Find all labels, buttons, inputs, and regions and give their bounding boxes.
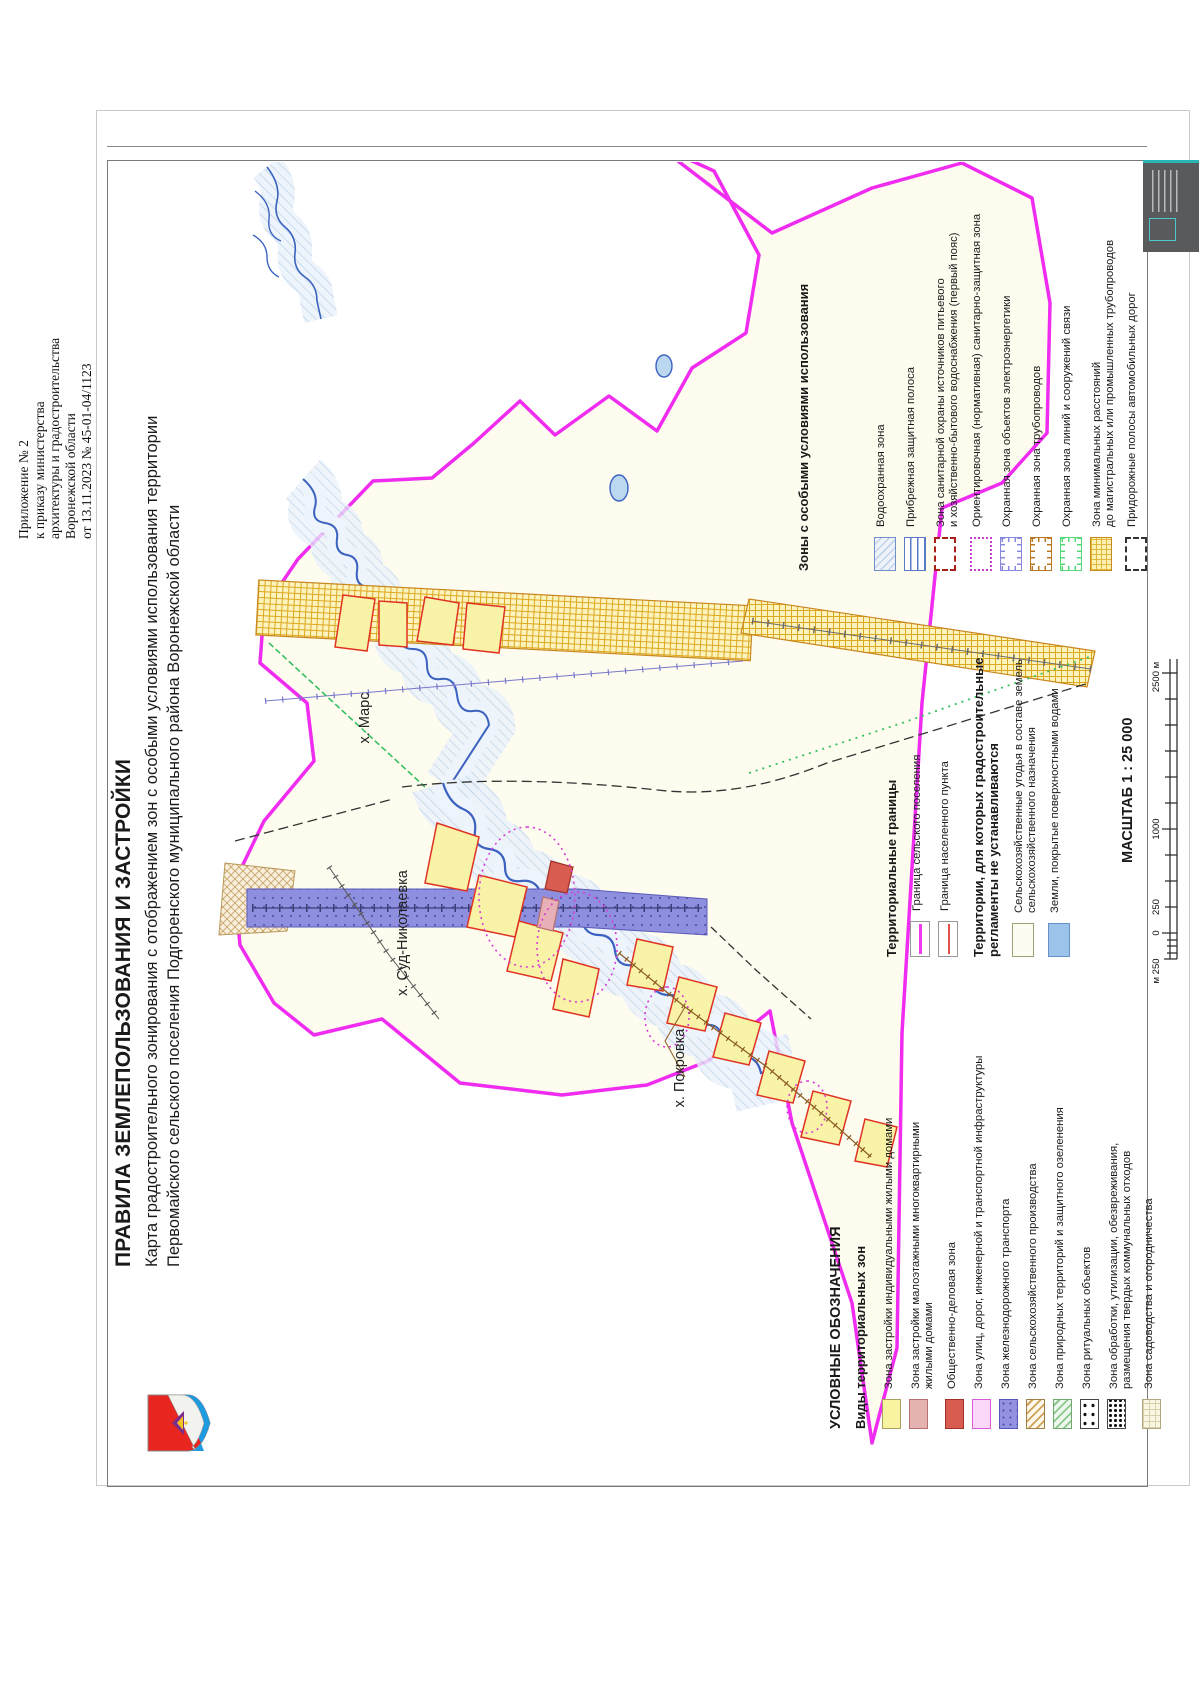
legend-heading: Территориальные границы: [884, 647, 899, 957]
legend-item: Граница сельского поселения: [909, 647, 930, 957]
legend-boundary-list: Граница сельского поселения Граница насе…: [909, 647, 958, 957]
legend-boundaries: Территориальные границы Граница сельског…: [884, 647, 1077, 957]
legend-item-label: Граница сельского поселения: [909, 755, 924, 911]
place-label-pokrovka: х. Покровка: [672, 1028, 688, 1108]
legend-swatch-icon: [882, 1399, 901, 1429]
legend-line-swatch-icon: [910, 921, 930, 957]
legend-swatch-icon: [1053, 1399, 1072, 1429]
legend-item-label: Зона улиц, дорог, инженерной и транспорт…: [971, 1056, 986, 1389]
legend-swatch-icon: [1080, 1399, 1099, 1429]
legend-item-label: Зона железнодорожного транспорта: [998, 1199, 1013, 1389]
scale-title: МАСШТАБ 1 : 25 000: [1120, 718, 1136, 863]
legend-swatch-icon: [1060, 537, 1082, 571]
streams-north: [253, 167, 321, 319]
legend-heading: УСЛОВНЫЕ ОБОЗНАЧЕНИЯ: [828, 949, 844, 1429]
document-page: Приложение № 2 к приказу министерства ар…: [0, 0, 1200, 1699]
legend-item: Зона природных территорий и защитного оз…: [1052, 949, 1072, 1429]
legend-swatch-icon: [1030, 537, 1052, 571]
header-note-line: к приказу министерства: [32, 99, 48, 539]
legend-swatch-icon: [1048, 923, 1070, 957]
legend-line-swatch-icon: [938, 921, 958, 957]
legend-swatch-icon: [1107, 1399, 1126, 1429]
header-note: Приложение № 2 к приказу министерства ар…: [16, 99, 94, 539]
legend-swatch-icon: [1142, 1399, 1161, 1429]
legend-swatch-icon: [1090, 537, 1112, 571]
legend-item-label: Зона природных территорий и защитного оз…: [1052, 1107, 1067, 1389]
legend-item-label: Зона обработки, утилизации, обезвреживан…: [1106, 1143, 1135, 1389]
stamp-teal-edge: [1143, 160, 1199, 163]
legend-swatch-icon: [999, 1399, 1018, 1429]
legend-subheading: Виды территориальных зон: [853, 949, 868, 1429]
legend-item: Зона обработки, утилизации, обезвреживан…: [1106, 949, 1135, 1429]
legend-noreg-list: Сельскохозяйственные угодья в составе зе…: [1011, 647, 1070, 957]
legend-zouit: Зоны с особыми условиями использования В…: [796, 151, 1154, 571]
legend-heading-noreg: Территории, для которых градостроительны…: [971, 647, 1001, 957]
legend-swatch-icon: [1026, 1399, 1045, 1429]
header-note-line: архитектуры и градостроительства: [47, 99, 63, 539]
legend-swatch-icon: [904, 537, 926, 571]
legend-item-label: Ориентировочная (нормативная) санитарно-…: [969, 214, 984, 527]
legend-swatch-icon: [874, 537, 896, 571]
legend-item-label: Земли, покрытые поверхностными водами: [1047, 688, 1062, 913]
legend-item: Прибрежная защитная полоса: [903, 151, 926, 571]
scale-tick-label: 1000: [1151, 818, 1162, 839]
legend-item: Общественно-деловая зона: [944, 949, 964, 1429]
stamp-qr-icon: [1149, 218, 1176, 241]
legend-item-label: Водоохранная зона: [873, 424, 888, 527]
frame-margin-line: [107, 146, 1147, 147]
legend-swatch-icon: [1125, 537, 1147, 571]
legend-item: Зона застройки индивидуальными жилыми до…: [881, 949, 901, 1429]
scale-tick-label: 0: [1151, 930, 1162, 935]
scale-tick-label: 2500 м: [1151, 662, 1162, 692]
legend-item: Земли, покрытые поверхностными водами: [1047, 647, 1070, 957]
legend-swatch-icon: [909, 1399, 928, 1429]
legend-swatch-icon: [1012, 923, 1034, 957]
legend-item-label: Сельскохозяйственные угодья в составе зе…: [1011, 659, 1040, 913]
header-note-line: от 13.11.2023 № 45-01-04/1123: [79, 99, 95, 539]
legend-item: Ориентировочная (нормативная) санитарно-…: [969, 151, 992, 571]
header-note-line: Приложение № 2: [16, 99, 32, 539]
legend-item-label: Зона садоводства и огородничества: [1141, 1198, 1156, 1389]
legend-item-label: Охранная зона трубопроводов: [1029, 366, 1044, 527]
legend-item-label: Зона сельскохозяйственного производства: [1025, 1163, 1040, 1389]
place-label-mars: х. Марс: [357, 693, 373, 744]
legend-item: Зона железнодорожного транспорта: [998, 949, 1018, 1429]
legend-item-label: Зона минимальных расстояний до магистрал…: [1089, 240, 1118, 527]
legend-item: Охранная зона трубопроводов: [1029, 151, 1052, 571]
legend-swatch-icon: [970, 537, 992, 571]
legend-swatch-icon: [945, 1399, 964, 1429]
legend-item-label: Зона застройки индивидуальными жилыми до…: [881, 1118, 896, 1389]
scale-tick-label: м 250: [1151, 958, 1162, 983]
legend-heading: Зоны с особыми условиями использования: [796, 151, 811, 571]
legend-item: Зона садоводства и огородничества: [1141, 949, 1161, 1429]
legend-item: Охранная зона объектов электроэнергетики: [999, 151, 1022, 571]
legend-item-label: Зона ритуальных объектов: [1079, 1247, 1094, 1389]
legend-item: Граница населенного пункта: [937, 647, 958, 957]
legend-item: Охранная зона линий и сооружений связи: [1059, 151, 1082, 571]
legend-item-label: Зона застройки малоэтажными многоквартир…: [908, 1122, 937, 1389]
landscape-sheet: Приложение № 2 к приказу министерства ар…: [0, 0, 1200, 1699]
legend-item: Зона улиц, дорог, инженерной и транспорт…: [971, 949, 991, 1429]
legend-item-label: Прибрежная защитная полоса: [903, 367, 918, 527]
legend-item: Зона застройки малоэтажными многоквартир…: [908, 949, 937, 1429]
legend-swatch-icon: [934, 537, 956, 571]
legend-zone-types: УСЛОВНЫЕ ОБОЗНАЧЕНИЯ Виды территориальны…: [828, 949, 1168, 1429]
legend-zone-list: Зона застройки индивидуальными жилыми до…: [881, 949, 1161, 1429]
legend-item: Водоохранная зона: [873, 151, 896, 571]
legend-item: Зона санитарной охраны источников питьев…: [933, 151, 962, 571]
header-note-line: Воронежской области: [63, 99, 79, 539]
stamp-badge: [1143, 160, 1199, 252]
legend-zouit-list: Водоохранная зона Прибрежная защитная по…: [873, 151, 1147, 571]
legend-item: Сельскохозяйственные угодья в составе зе…: [1011, 647, 1040, 957]
legend-swatch-icon: [972, 1399, 991, 1429]
legend-item-label: Придорожные полосы автомобильных дорог: [1124, 292, 1139, 527]
legend-item-label: Общественно-деловая зона: [944, 1242, 959, 1389]
scale-tick-label: 250: [1151, 899, 1162, 915]
legend-item-label: Граница населенного пункта: [937, 761, 952, 911]
legend-item: Зона ритуальных объектов: [1079, 949, 1099, 1429]
legend-item-label: Охранная зона линий и сооружений связи: [1059, 306, 1074, 527]
legend-item: Зона минимальных расстояний до магистрал…: [1089, 151, 1118, 571]
legend-item: Зона сельскохозяйственного производства: [1025, 949, 1045, 1429]
legend-item-label: Зона санитарной охраны источников питьев…: [933, 233, 962, 528]
legend-item-label: Охранная зона объектов электроэнергетики: [999, 296, 1014, 527]
legend-swatch-icon: [1000, 537, 1022, 571]
stamp-text-lines: [1152, 170, 1182, 212]
place-label-sud-nikolaevka: х. Суд-Николаевка: [395, 869, 411, 996]
scale-bar: м 250 0 250 1000 2500 м: [1146, 639, 1193, 999]
